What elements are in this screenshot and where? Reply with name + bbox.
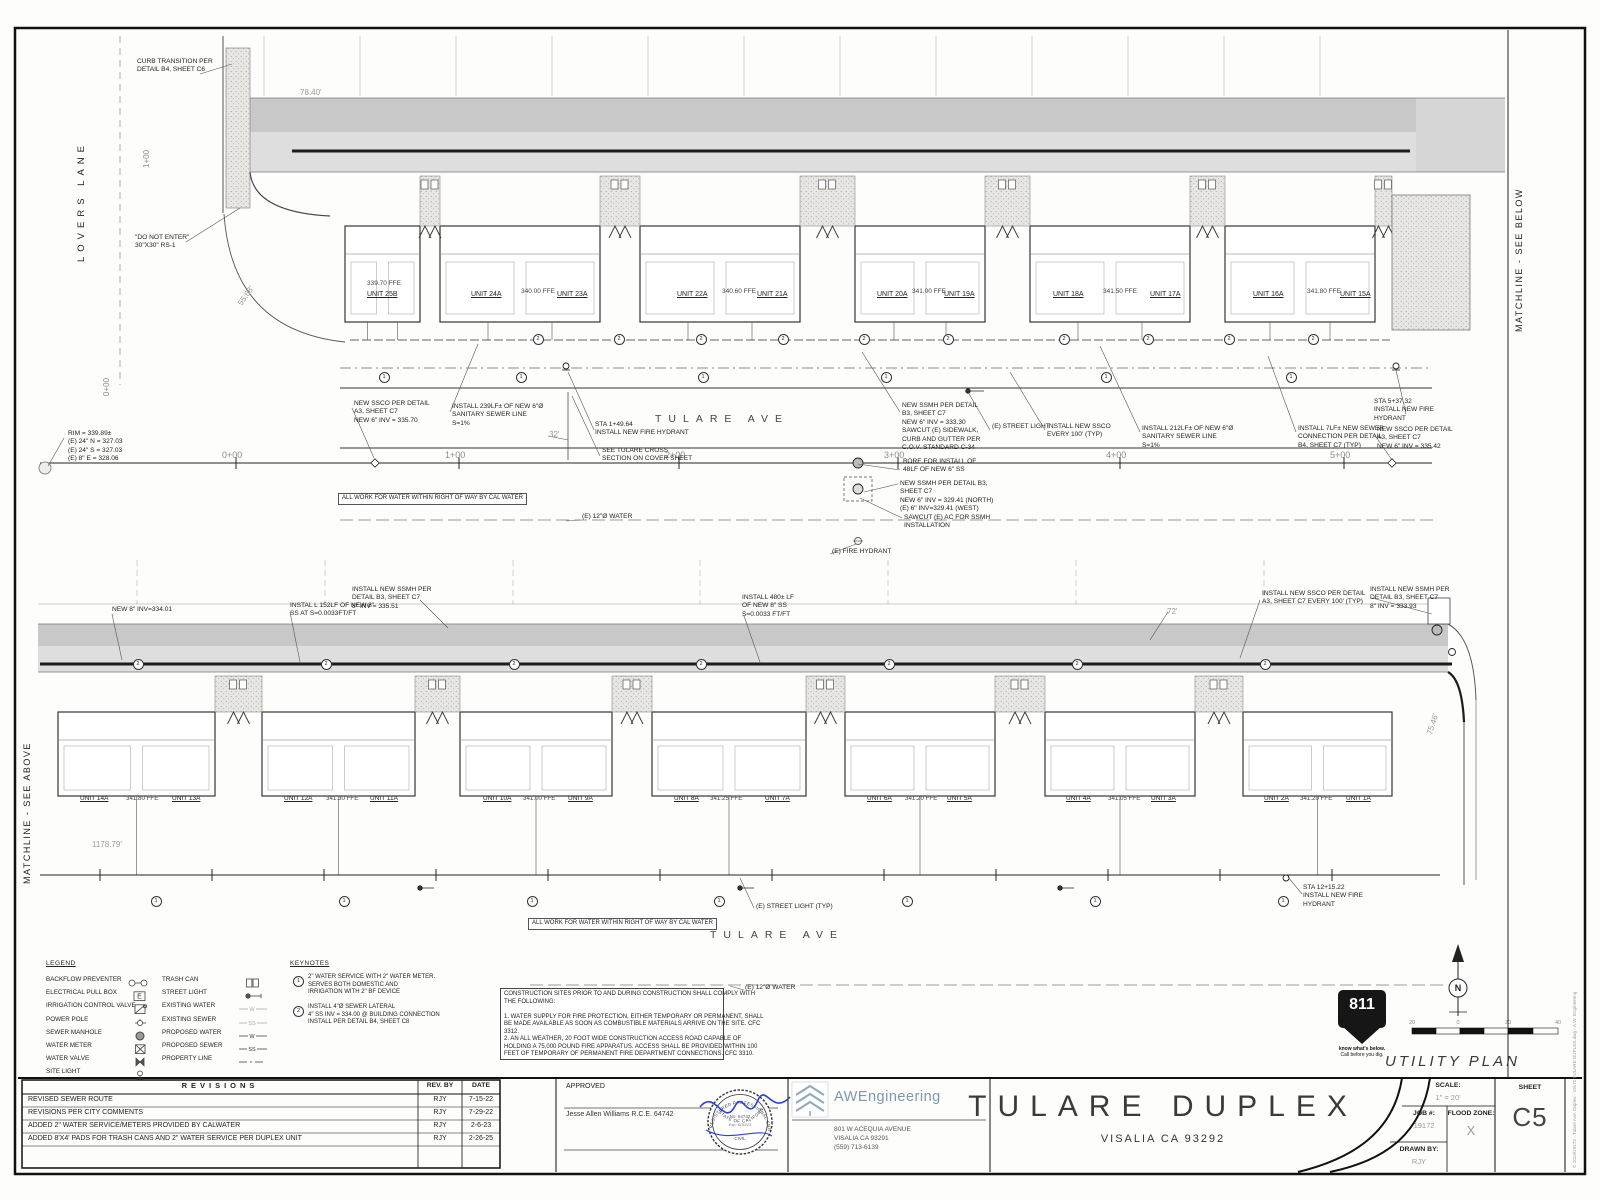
keynote-marker-1: 1 (881, 372, 892, 383)
keynote-marker-2: 2 (133, 659, 144, 670)
ffe-label: 341.50 FFE (1103, 288, 1137, 296)
plan-name: UTILITY PLAN (1385, 1053, 1520, 1070)
keynote-marker-2: 2 (1308, 334, 1319, 345)
unit-label: UNIT 24A (471, 291, 502, 300)
revision-by: RJY (433, 1109, 446, 1116)
callout-label: "DO NOT ENTER" 30"X30" RS-1 (135, 234, 189, 251)
svg-text:W: W (249, 1008, 255, 1014)
callout-label: SAWCUT (E) AC FOR SSMH INSTALLATION (904, 514, 990, 531)
dimension-label: 1178.79' (92, 840, 122, 850)
note-box: ALL WORK FOR WATER WITHIN RIGHT OF WAY B… (338, 493, 527, 505)
scalebar-label: 40 (1555, 1020, 1561, 1026)
unit-label: UNIT 17A (1150, 291, 1181, 300)
revision-desc: REVISED SEWER ROUTE (28, 1096, 113, 1103)
keynote-marker-2: 2 (884, 659, 895, 670)
revision-desc: REVISIONS PER CITY COMMENTS (28, 1109, 143, 1116)
stamp-exp: Exp. 6/30/23 (729, 1122, 752, 1127)
unit-label: UNIT 18A (1053, 291, 1084, 300)
stamp-civil: CIVIL (734, 1136, 746, 1141)
flood-zone-label: FLOOD ZONE: (1448, 1110, 1495, 1117)
firm-name: AWEngineering (834, 1089, 941, 1105)
legend-symbol-propline-icon (238, 1054, 268, 1064)
revisions-col-date: DATE (472, 1082, 490, 1089)
revision-date: 7-29-22 (469, 1109, 493, 1116)
keynote-marker-1: 1 (379, 372, 390, 383)
keynote-marker-2: 2 (778, 334, 789, 345)
plan-sheet: 2002040 (0, 0, 1600, 1200)
unit-label: UNIT 22A (677, 291, 708, 300)
keynote-marker-2: 2 (509, 659, 520, 670)
approved-label: APPROVED (566, 1083, 605, 1090)
unit-label: UNIT 25B (367, 291, 398, 300)
matchline-see-below: MATCHLINE - SEE BELOW (1514, 188, 1526, 332)
callout-label: RIM = 339.89± (E) 24" N = 327.03 (E) 24"… (68, 430, 123, 464)
legend-symbol-streetlight-icon (238, 988, 268, 998)
ffe-label: 341.20 FFE (905, 795, 937, 803)
legend-label: TRASH CAN (162, 976, 198, 983)
legend-label: WATER VALVE (46, 1055, 89, 1062)
legend-label: ELECTRICAL PULL BOX (46, 989, 117, 996)
unit-label: UNIT 15A (1340, 291, 1371, 300)
scalebar-label: 20 (1409, 1020, 1415, 1026)
legend-label: WATER METER (46, 1042, 92, 1049)
callout-label: NEW 8" INV=334.01 (112, 606, 172, 614)
keynote-marker-2: 2 (614, 334, 625, 345)
callout-label: BORE FOR INSTALL OF 48LF OF NEW 6" SS (903, 458, 976, 475)
unit-label: UNIT 12A (284, 795, 312, 803)
legend-label: STREET LIGHT (162, 989, 207, 996)
legend-label: EXISTING WATER (162, 1002, 215, 1009)
legend-symbol-icv-icon (126, 1001, 156, 1011)
job-label: JOB #: (1413, 1110, 1435, 1117)
legend-label: BACKFLOW PREVENTER (46, 976, 122, 983)
legend-symbol-watermeter-icon (126, 1041, 156, 1051)
ffe-label: 341.05 FFE (1108, 795, 1140, 803)
unit-label: UNIT 8A (674, 795, 699, 803)
job-value: 19172 (1414, 1121, 1435, 1130)
scalebar-label: 0 (1456, 1020, 1459, 1026)
matchline-see-above: MATCHLINE - SEE ABOVE (22, 742, 34, 884)
legend-symbol-trashcan-icon (238, 975, 268, 985)
keynote-text: INSTALL 4"Ø SEWER LATERAL 4" SS INV = 33… (308, 1004, 440, 1027)
revisions-col-by: REV. BY (427, 1082, 454, 1089)
legend-symbol-powerpole-icon (126, 1015, 156, 1025)
legend-symbol-existwater-icon: W (238, 1001, 268, 1011)
keynote-marker-2: 2 (1143, 334, 1154, 345)
unit-label: UNIT 7A (765, 795, 790, 803)
unit-label: UNIT 21A (757, 291, 788, 300)
revision-date: 7-15-22 (469, 1096, 493, 1103)
keynote-marker-2: 2 (533, 334, 544, 345)
scale-label: SCALE: (1435, 1082, 1460, 1089)
keynote-marker-1: 1 (714, 896, 725, 907)
revision-desc: ADDED 8'X4' PADS FOR TRASH CANS AND 2" W… (28, 1135, 302, 1142)
svg-text:SS: SS (248, 1021, 256, 1027)
project-city: VISALIA CA 93292 (1101, 1133, 1225, 1145)
ffe-label: 341.20 FFE (1300, 795, 1332, 803)
callout-label: STA 5+37.32 INSTALL NEW FIRE HYDRANT (1374, 398, 1434, 423)
svg-text:W: W (249, 1034, 255, 1040)
call811-line2: Call before you dig. (1340, 1052, 1383, 1058)
ffe-label: 340.00 FFE (521, 288, 555, 296)
callout-label: INSTALL NEW SSCO PER DETAIL A3, SHEET C7… (1262, 590, 1366, 607)
call811-number: 811 (1349, 996, 1375, 1014)
north-letter: N (1455, 983, 1462, 993)
ffe-label: 341.80 FFE (1307, 288, 1341, 296)
keynote-marker-2: 2 (1224, 334, 1235, 345)
legend-label: SEWER MANHOLE (46, 1029, 102, 1036)
ffe-label: 341.30 FFE (326, 795, 358, 803)
legend-symbol-manhole-icon (126, 1028, 156, 1038)
callout-label: INSTALL 7LF± NEW SEWER CONNECTION PER DE… (1298, 425, 1384, 450)
callout-label: NEW SSCO PER DETAIL A3, SHEET C7 NEW 6" … (1377, 426, 1453, 451)
callout-label: NEW SSCO PER DETAIL A3, SHEET C7 NEW 6" … (354, 400, 430, 425)
keynote-marker-1: 1 (339, 896, 350, 907)
unit-label: UNIT 9A (568, 795, 593, 803)
unit-label: UNIT 6A (867, 795, 892, 803)
unit-label: UNIT 2A (1264, 795, 1289, 803)
station-label: 0+00 (102, 378, 112, 396)
firm-address: 801 W ACEQUIA AVENUE VISALIA CA 93291 (5… (834, 1126, 911, 1152)
keynote-marker-2: 2 (1260, 659, 1271, 670)
unit-label: UNIT 3A (1151, 795, 1176, 803)
revision-by: RJY (433, 1096, 446, 1103)
unit-label: UNIT 19A (944, 291, 975, 300)
station-label: 0+00 (222, 450, 242, 462)
callout-label: INSTALL 212LF± OF NEW 6"Ø SANITARY SEWER… (1142, 425, 1233, 450)
keynote-text: 2" WATER SERVICE WITH 2" WATER METER. SE… (308, 974, 435, 997)
keynote-marker-1: 1 (1090, 896, 1101, 907)
legend-symbol-sitelight-icon (126, 1067, 156, 1077)
callout-label: INSTALL 480± LF OF NEW 8" SS S=0.0033 FT… (742, 594, 794, 619)
unit-label: UNIT 20A (877, 291, 908, 300)
station-label: 5+00 (1330, 450, 1350, 462)
station-label: 4+00 (1106, 450, 1126, 462)
keynote-marker-1: 1 (527, 896, 538, 907)
bottom-plan-geometry (38, 560, 1476, 990)
legend-title: LEGEND (46, 960, 76, 968)
station-label: 1+00 (142, 150, 152, 168)
scale-bar: 2002040 (1409, 1020, 1561, 1034)
keynote-marker-2: 2 (696, 334, 707, 345)
keynote-marker-2: 2 (696, 659, 707, 670)
unit-label: UNIT 5A (947, 795, 972, 803)
callout-label: INSTALL NEW SSMH PER DETAIL B3, SHEET C7… (352, 586, 432, 611)
scalebar-label: 20 (1505, 1020, 1511, 1026)
callout-label: (E) 12"Ø WATER (745, 984, 795, 992)
keynote-marker-2: 2 (1072, 659, 1083, 670)
unit-label: UNIT 4A (1066, 795, 1091, 803)
keynote-marker-2: 2 (943, 334, 954, 345)
drawn-by-value: RJY (1412, 1157, 1426, 1166)
callout-label: STA 1+49.64 INSTALL NEW FIRE HYDRANT (595, 421, 689, 438)
legend-label: SITE LIGHT (46, 1068, 80, 1075)
callout-label: (E) STREET LIGHT (TYP) (756, 903, 833, 911)
unit-label: UNIT 1A (1346, 795, 1371, 803)
sheet-label: SHEET (1519, 1084, 1542, 1091)
unit-label: UNIT 11A (370, 795, 398, 803)
legend-label: EXISTING SEWER (162, 1016, 216, 1023)
legend-label: IRRIGATION CONTROL VALVE (46, 1002, 136, 1009)
sheet-number: C5 (1512, 1102, 1547, 1133)
dimension-label: 78.40' (300, 88, 322, 98)
revision-desc: ADDED 2" WATER SERVICE/METERS PROVIDED B… (28, 1122, 240, 1129)
revision-by: RJY (433, 1135, 446, 1142)
unit-label: UNIT 14A (80, 795, 108, 803)
keynote-marker-1: 1 (1101, 372, 1112, 383)
revision-date: 2-26-25 (469, 1135, 493, 1142)
callout-label: (E) 12"Ø WATER (582, 513, 632, 521)
callout-label: NEW SSMH PER DETAIL B3, SHEET C7 NEW 6" … (902, 402, 980, 453)
flood-zone-value: X (1467, 1123, 1476, 1138)
legend-symbol-backflow-icon (126, 975, 156, 985)
keynote-marker-1: 1 (1286, 372, 1297, 383)
ffe-label: 340.60 FFE (722, 288, 756, 296)
stamp-number: No. 64742 (730, 1114, 751, 1119)
callout-label: (E) STREET LIGHT (992, 423, 1050, 431)
callout-label: CURB TRANSITION PER DETAIL B4, SHEET C6 (137, 58, 213, 75)
engineer-name: Jesse Allen Williams R.C.E. 64742 (566, 1111, 673, 1118)
unit-label: UNIT 23A (557, 291, 588, 300)
street-tulare-ave-bottom: TULARE AVE (710, 929, 844, 942)
keynote-marker-1: 1 (1278, 896, 1289, 907)
copyright-strip: © 2019\19172 - Tulare Ave. Duplex - 1917… (1572, 992, 1577, 1168)
legend-label: PROPOSED SEWER (162, 1042, 223, 1049)
legend-symbol-pullbox-icon: E (126, 988, 156, 998)
unit-label: UNIT 13A (172, 795, 200, 803)
dimension-label: 32' (549, 430, 559, 440)
legend-symbol-propwater-icon: W (238, 1028, 268, 1038)
note-box: ALL WORK FOR WATER WITHIN RIGHT OF WAY B… (528, 918, 717, 930)
revision-by: RJY (433, 1122, 446, 1129)
svg-text:E: E (137, 994, 142, 1001)
legend-symbol-propsewer-icon: SS (238, 1041, 268, 1051)
revision-date: 2-6-23 (471, 1122, 491, 1129)
callout-label: NEW SSMH PER DETAIL B3, SHEET C7 NEW 6" … (900, 480, 993, 514)
svg-text:SS: SS (248, 1047, 256, 1053)
keynote-marker-1: 1 (516, 372, 527, 383)
ffe-label: 341.25 FFE (710, 795, 742, 803)
callout-label: INSTALL 239LF± OF NEW 6"Ø SANITARY SEWER… (452, 403, 543, 428)
keynote-marker-1: 1 (902, 896, 913, 907)
ffe-label: 341.80 FFE (126, 795, 158, 803)
keynote-marker-2: 2 (321, 659, 332, 670)
drawn-by-label: DRAWN BY: (1400, 1146, 1439, 1153)
station-label: 1+00 (445, 450, 465, 462)
unit-label: UNIT 10A (483, 795, 511, 803)
keynote-number: 1 (293, 976, 304, 987)
project-title: TULARE DUPLEX (968, 1090, 1358, 1124)
legend-label: PROPOSED WATER (162, 1029, 221, 1036)
firm-logo-icon (792, 1082, 828, 1117)
keynote-marker-1: 1 (698, 372, 709, 383)
ffe-label: 339.70 FFE (367, 280, 401, 288)
street-lovers-lane: LOVERS LANE (76, 141, 88, 262)
ffe-label: 341.00 FFE (523, 795, 555, 803)
callout-label: (E) FIRE HYDRANT (832, 548, 891, 556)
keynotes-title: KEYNOTES (290, 960, 329, 968)
unit-label: UNIT 16A (1253, 291, 1284, 300)
dimension-label: 72' (1167, 607, 1177, 617)
construction-notes: CONSTRUCTION SITES PRIOR TO AND DURING C… (500, 988, 724, 1060)
keynote-marker-2: 2 (1059, 334, 1070, 345)
north-arrow (1449, 944, 1467, 1016)
legend-label: POWER POLE (46, 1016, 88, 1023)
callout-label: STA 12+15.22 INSTALL NEW FIRE HYDRANT (1303, 884, 1363, 909)
scale-value: 1" = 20' (1435, 1093, 1460, 1102)
keynote-marker-2: 2 (859, 334, 870, 345)
callout-label: INSTALL NEW SSCO EVERY 100' (TYP) (1047, 423, 1111, 440)
callout-label: SEE TULARE CROSS SECTION ON COVER SHEET (602, 447, 692, 464)
revisions-header: REVISIONS (182, 1081, 259, 1090)
keynote-marker-1: 1 (151, 896, 162, 907)
callout-label: INSTALL NEW SSMH PER DETAIL B3, SHEET C7… (1370, 586, 1450, 611)
legend-symbol-existsewer-icon: SS (238, 1015, 268, 1025)
ffe-label: 341.00 FFE (912, 288, 946, 296)
keynote-number: 2 (293, 1006, 304, 1017)
legend-symbol-watervalve-icon (126, 1054, 156, 1064)
legend-label: PROPERTY LINE (162, 1055, 212, 1062)
